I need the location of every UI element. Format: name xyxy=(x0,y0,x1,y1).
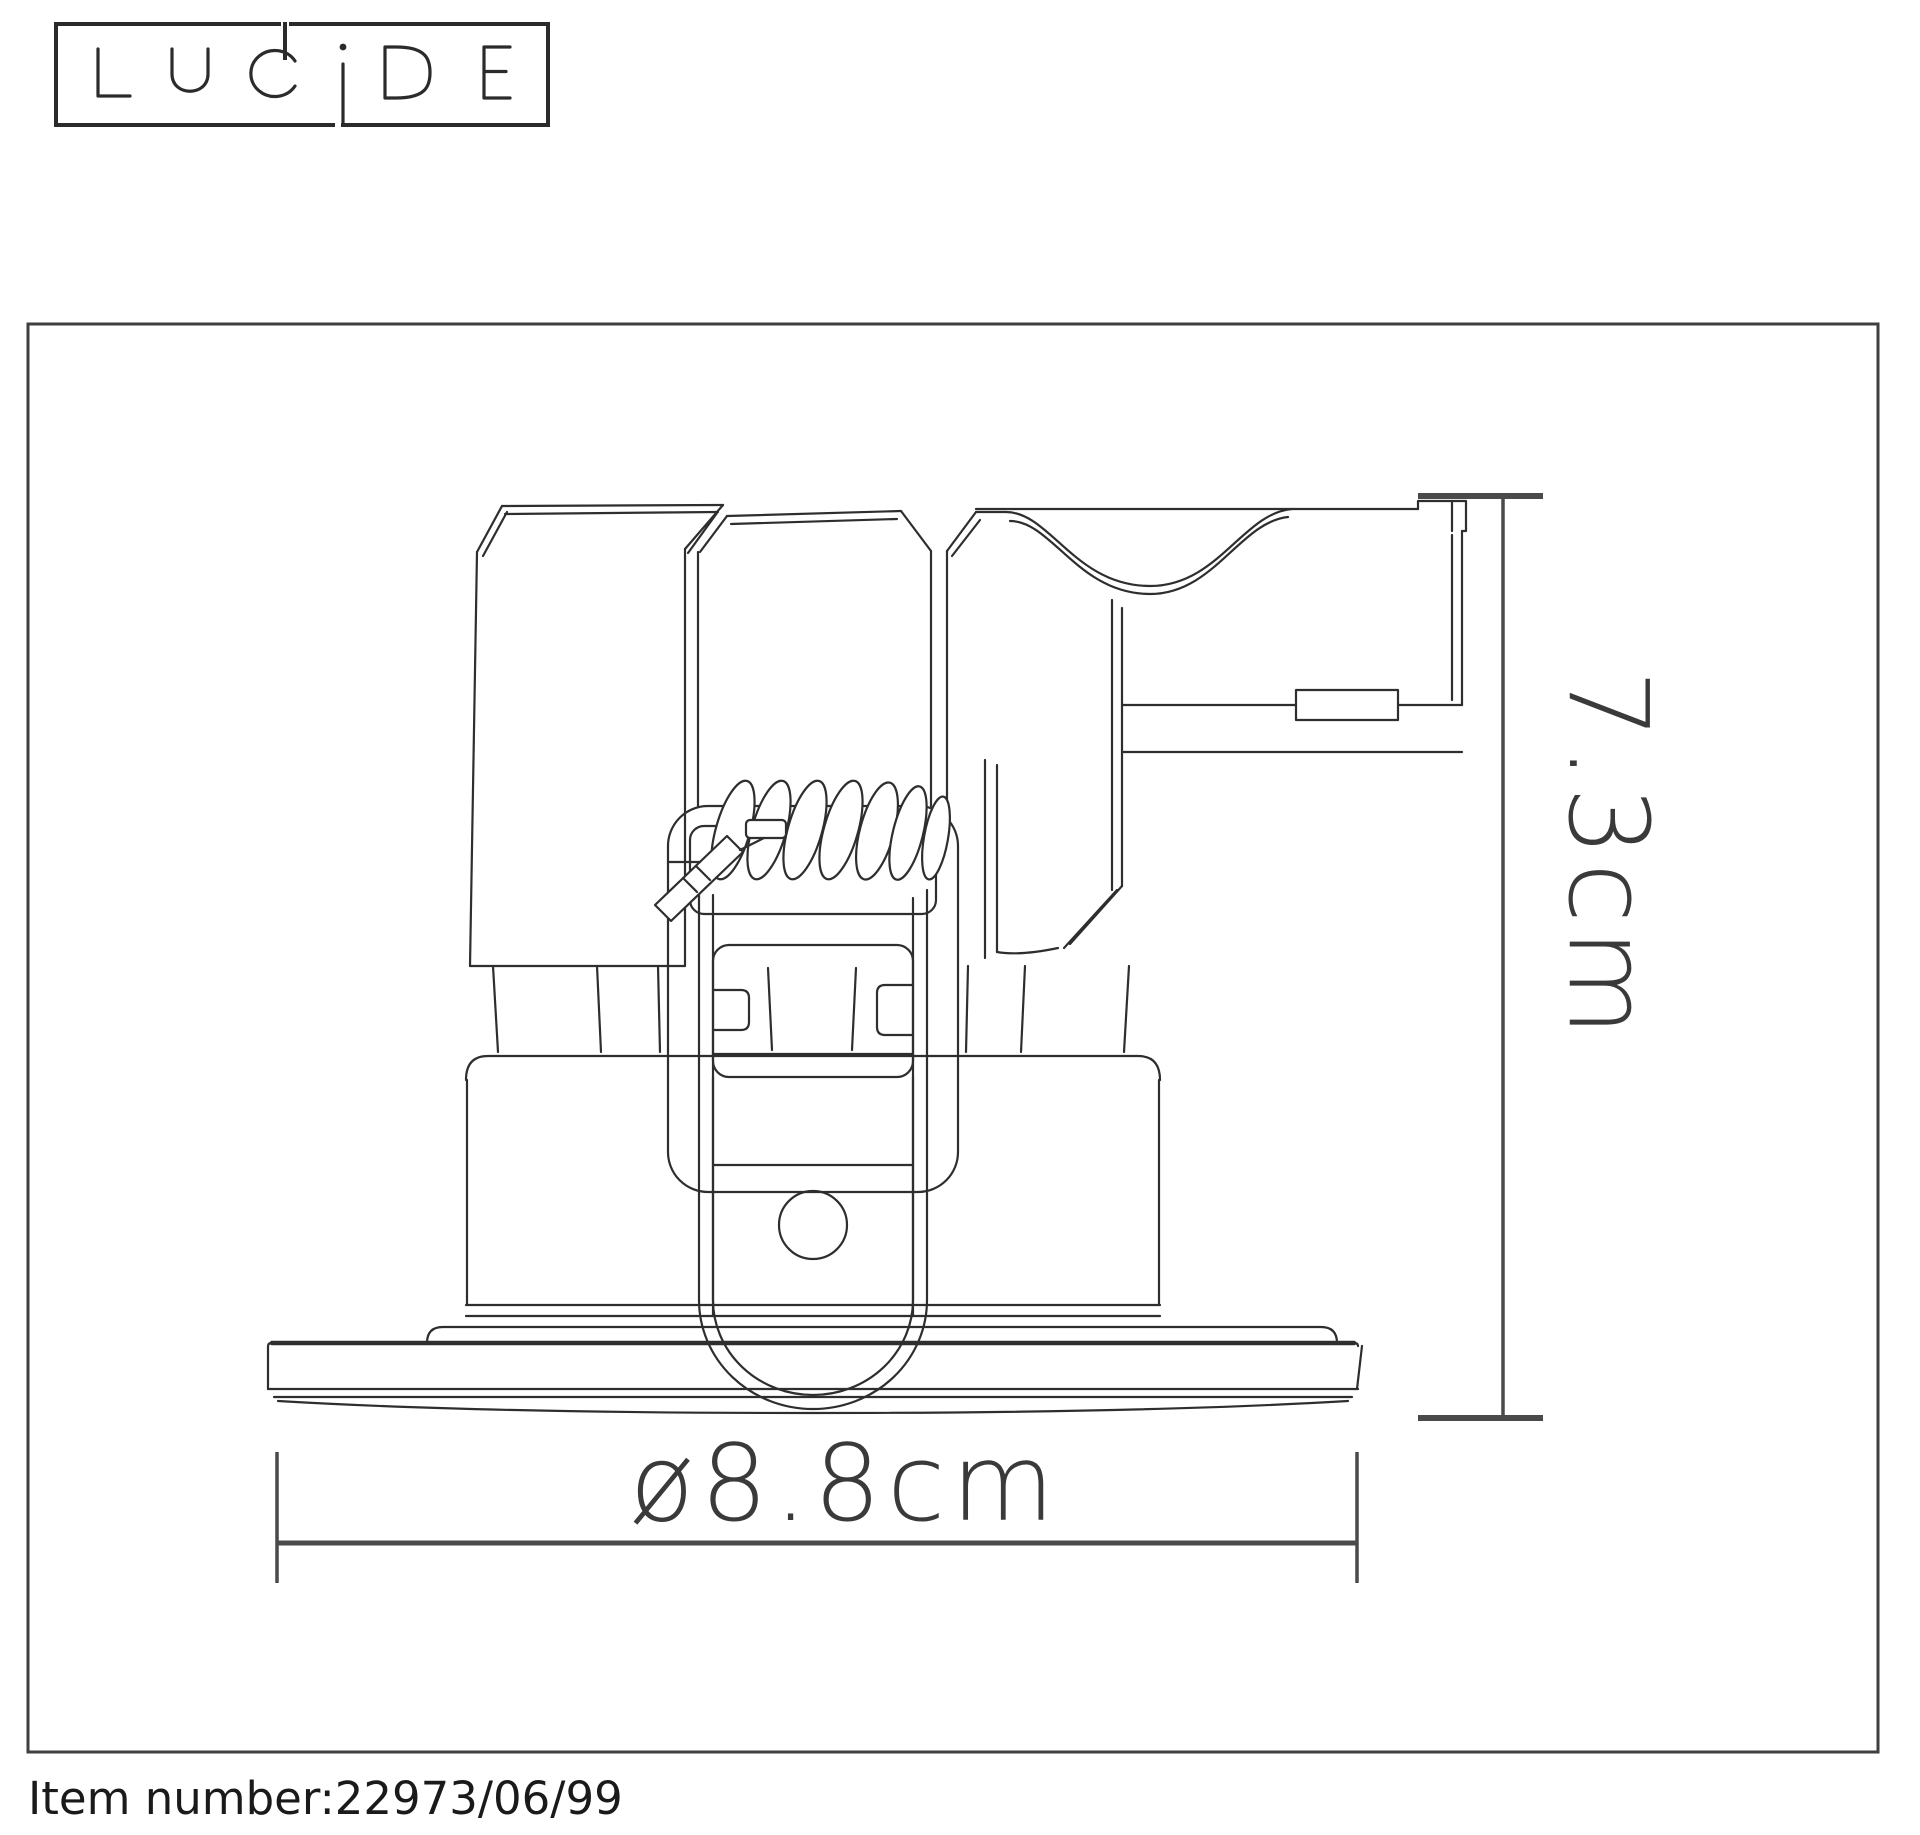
height-dimension: 7.3cm xyxy=(1418,496,1672,1418)
clamp-block xyxy=(713,945,913,1315)
spotlight-side-view xyxy=(268,501,1466,1413)
technical-drawing: 7.3cm ø8.8cm xyxy=(0,0,1920,1835)
retaining-wire xyxy=(699,886,927,1409)
trim-ring xyxy=(268,1343,1362,1413)
diameter-dimension: ø8.8cm xyxy=(277,1422,1357,1583)
driver-bracket xyxy=(947,501,1466,958)
terminal-block xyxy=(1296,690,1398,720)
lens-dish-curve xyxy=(278,1401,1348,1413)
lower-body xyxy=(427,1056,1337,1343)
height-dimension-label: 7.3cm xyxy=(1544,670,1672,1043)
housing-middle-plateau xyxy=(700,511,947,806)
screw-hole xyxy=(779,1191,847,1259)
spring-pin xyxy=(746,820,786,838)
coil-spring xyxy=(703,776,956,883)
product-sheet: LUCIDE xyxy=(0,0,1920,1835)
item-number: Item number:22973/06/99 xyxy=(28,1772,623,1825)
housing-legs xyxy=(493,966,1129,1052)
diameter-dimension-label: ø8.8cm xyxy=(630,1422,1061,1545)
